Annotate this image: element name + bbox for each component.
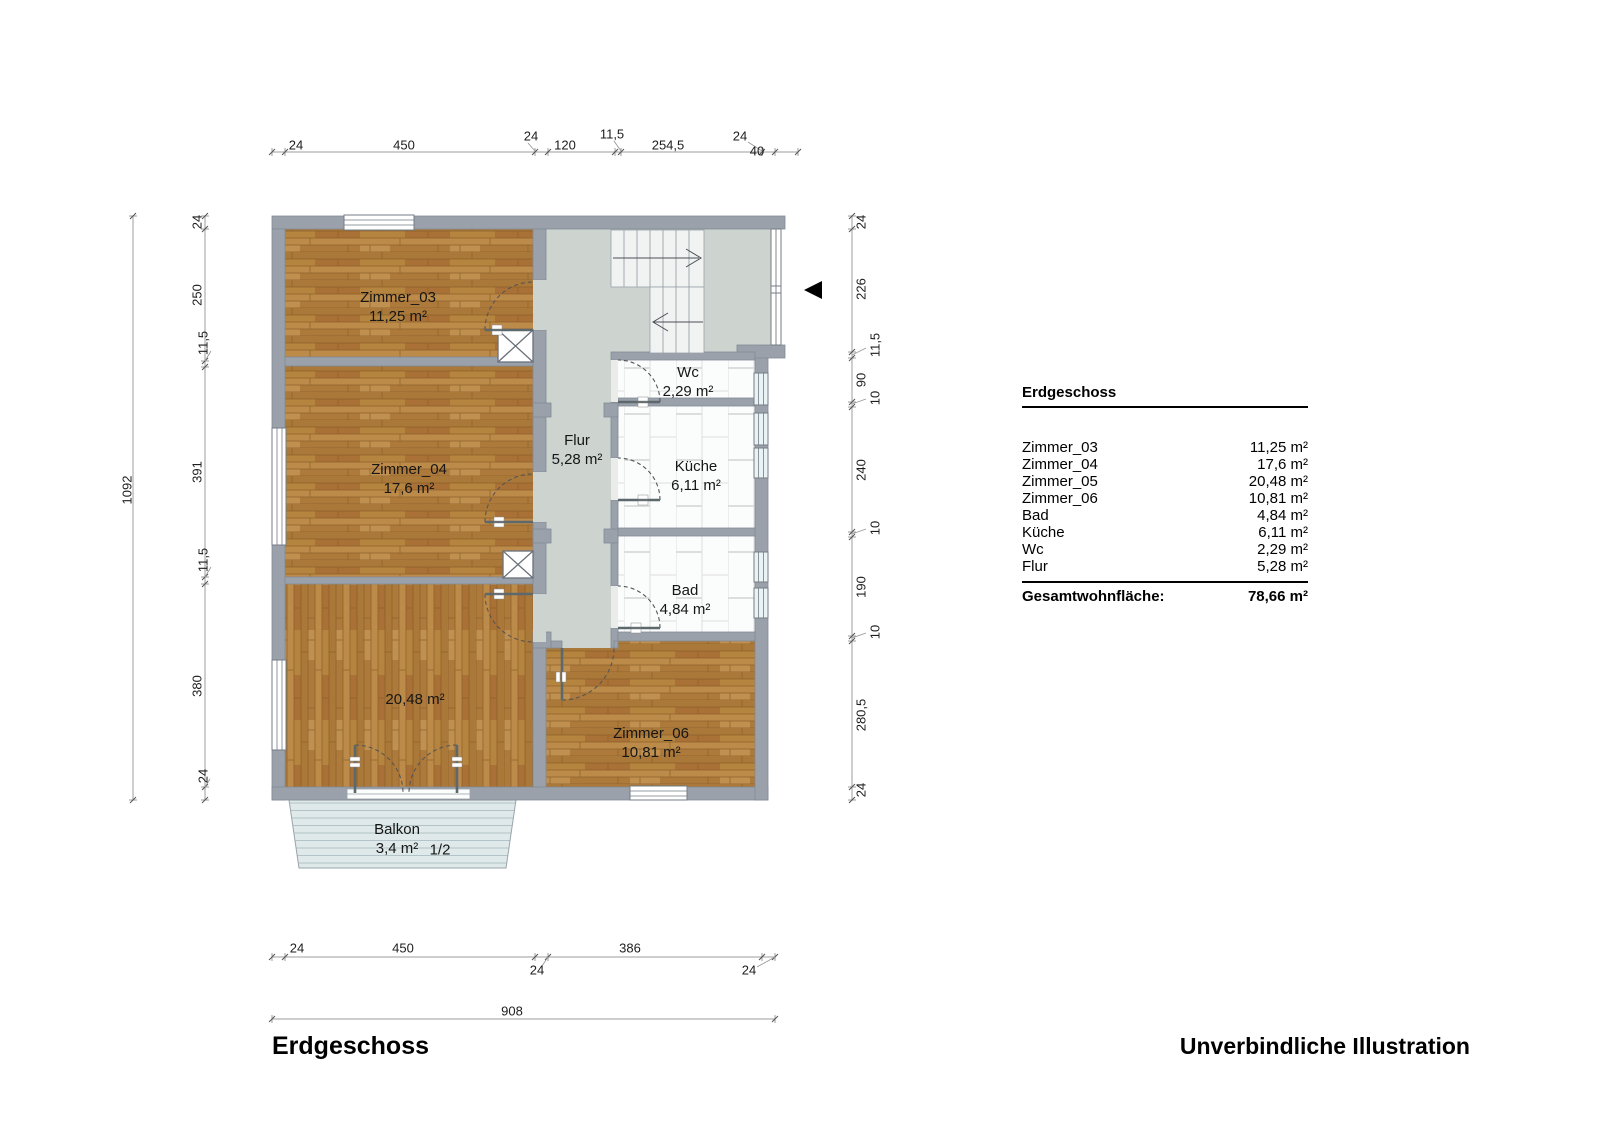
dim-label: 10 [868, 521, 883, 535]
room-name: Zimmer_04 [371, 461, 447, 478]
window [754, 552, 768, 582]
window [630, 786, 687, 800]
room-label-bad: Bad 4,84 m² [660, 581, 711, 619]
wall-bad-z06 [618, 632, 755, 641]
legend-row: Zimmer_04 17,6 m² [1022, 456, 1308, 473]
room-name: Zimmer_03 [360, 289, 436, 306]
dim-label: 24 [289, 138, 303, 153]
wall-stub [604, 403, 618, 417]
window [344, 215, 414, 230]
wall-corridor [533, 229, 546, 280]
dim-label: 24 [290, 941, 304, 956]
shaft-icon [503, 551, 533, 578]
wall-bottom [272, 787, 768, 800]
legend-row: Zimmer_05 20,48 m² [1022, 473, 1308, 490]
dim-label-total-width: 908 [501, 1004, 523, 1019]
room-area: 5,28 m² [552, 451, 603, 468]
shaft-icon [498, 330, 533, 362]
disclaimer-text: Unverbindliche Illustration [1180, 1033, 1470, 1060]
legend-total-label: Gesamtwohnfläche: [1022, 588, 1165, 605]
legend-rows: Zimmer_03 11,25 m² Zimmer_04 17,6 m² Zim… [1022, 439, 1308, 575]
legend-row: Küche 6,11 m² [1022, 524, 1308, 541]
legend-row: Flur 5,28 m² [1022, 558, 1308, 575]
dim-label: 24 [530, 963, 544, 978]
dim-label: 226 [854, 278, 869, 300]
dim-label: 24 [524, 129, 538, 144]
legend-room: Zimmer_03 [1022, 439, 1098, 456]
legend-total-value: 78,66 m² [1248, 588, 1308, 605]
wall-z03-z04 [285, 357, 533, 366]
dim-label: 254,5 [652, 138, 685, 153]
room-label-kueche: Küche 6,11 m² [671, 457, 721, 495]
floorplan-drawing [0, 0, 1600, 1132]
room-area: 17,6 m² [384, 480, 435, 497]
legend-room: Bad [1022, 507, 1049, 524]
legend-area: 11,25 m² [1250, 439, 1308, 456]
legend-room: Flur [1022, 558, 1048, 575]
dim-label: 11,5 [196, 548, 211, 572]
wall-corridor [533, 642, 546, 787]
dim-label: 280,5 [854, 699, 869, 732]
dim-label: 380 [190, 675, 205, 697]
legend-area: 17,6 m² [1257, 456, 1308, 473]
legend-area: 5,28 m² [1257, 558, 1308, 575]
wall-stub [533, 529, 551, 543]
dim-label-total-height: 1092 [120, 476, 135, 505]
dim-label: 24 [854, 215, 869, 229]
legend-room: Küche [1022, 524, 1065, 541]
dim-label: 10 [868, 625, 883, 639]
room-label-flur: Flur 5,28 m² [552, 431, 603, 469]
dim-label: 11,5 [600, 127, 624, 142]
room-name: Flur [564, 432, 590, 449]
legend-total-row: Gesamtwohnfläche: 78,66 m² [1022, 581, 1308, 605]
wall-kueche-bad [618, 528, 755, 536]
wall-corridor [533, 330, 546, 472]
room-area: 10,81 m² [621, 744, 680, 761]
room-name: Zimmer_06 [613, 725, 689, 742]
legend-area: 10,81 m² [1249, 490, 1308, 507]
dim-label: 24 [190, 215, 205, 229]
legend-row: Bad 4,84 m² [1022, 507, 1308, 524]
room-area: 4,84 m² [660, 601, 711, 618]
legend-row: Zimmer_06 10,81 m² [1022, 490, 1308, 507]
room-area: 3,4 m² [376, 840, 419, 857]
room-area: 20,48 m² [385, 691, 444, 708]
wall-z06-doorway [614, 641, 618, 648]
dim-label: 10 [868, 391, 883, 405]
area-legend: Erdgeschoss Zimmer_03 11,25 m² Zimmer_04… [1022, 384, 1308, 605]
room-name: Küche [675, 458, 718, 475]
legend-room: Zimmer_06 [1022, 490, 1098, 507]
room-name: Wc [677, 364, 699, 381]
dim-label: 240 [854, 459, 869, 481]
window [272, 660, 286, 750]
room-name: Bad [672, 582, 699, 599]
dim-label: 24 [742, 963, 756, 978]
balkon-half-note: 1/2 [430, 842, 451, 859]
legend-row: Wc 2,29 m² [1022, 541, 1308, 558]
window [754, 413, 768, 445]
room-label-zimmer-05: 20,48 m² [385, 671, 444, 709]
floorplan-sheet: 24 450 24 120 11,5 254,5 24 40 1092 24 2… [0, 0, 1600, 1132]
dim-label: 250 [190, 284, 205, 306]
dim-label: 11,5 [196, 331, 211, 355]
room-label-wc: Wc 2,29 m² [663, 363, 714, 401]
dim-label: 190 [854, 576, 869, 598]
dim-label: 24 [854, 783, 869, 797]
dim-label: 24 [733, 129, 747, 144]
legend-title: Erdgeschoss [1022, 384, 1308, 408]
room-area: 6,11 m² [671, 477, 721, 494]
dim-label: 90 [854, 373, 869, 387]
legend-area: 2,29 m² [1257, 541, 1308, 558]
zimmer-06-floor [546, 648, 755, 787]
legend-room: Zimmer_04 [1022, 456, 1098, 473]
legend-area: 20,48 m² [1249, 473, 1308, 490]
entrance-glazing [771, 229, 781, 345]
room-area: 2,29 m² [663, 383, 714, 400]
window [272, 428, 286, 545]
wall-z04-z05 [285, 577, 533, 584]
room-name: Balkon [374, 821, 420, 838]
legend-area: 6,11 m² [1258, 524, 1308, 541]
room-label-zimmer-06: Zimmer_06 10,81 m² [613, 724, 689, 762]
dim-label: 450 [392, 941, 414, 956]
window [754, 448, 768, 478]
legend-room: Zimmer_05 [1022, 473, 1098, 490]
room-label-balkon: Balkon 3,4 m² [374, 820, 420, 858]
dim-label: 386 [619, 941, 641, 956]
dim-label: 24 [196, 769, 211, 783]
window [754, 588, 768, 618]
dim-label: 11,5 [868, 333, 883, 357]
entrance-arrow-icon [804, 281, 822, 299]
dim-label: 120 [554, 138, 576, 153]
room-area: 11,25 m² [369, 308, 427, 325]
legend-area: 4,84 m² [1257, 507, 1308, 524]
dim-label: 391 [190, 461, 205, 483]
wall-stub [533, 403, 551, 417]
window [754, 373, 768, 405]
wall-stub [604, 529, 618, 543]
sheet-title: Erdgeschoss [272, 1032, 429, 1061]
dim-label: 450 [393, 138, 415, 153]
room-label-zimmer-04: Zimmer_04 17,6 m² [371, 460, 447, 498]
room-label-zimmer-03: Zimmer_03 11,25 m² [360, 288, 436, 326]
dim-label: 40 [750, 144, 764, 159]
legend-room: Wc [1022, 541, 1044, 558]
legend-row: Zimmer_03 11,25 m² [1022, 439, 1308, 456]
